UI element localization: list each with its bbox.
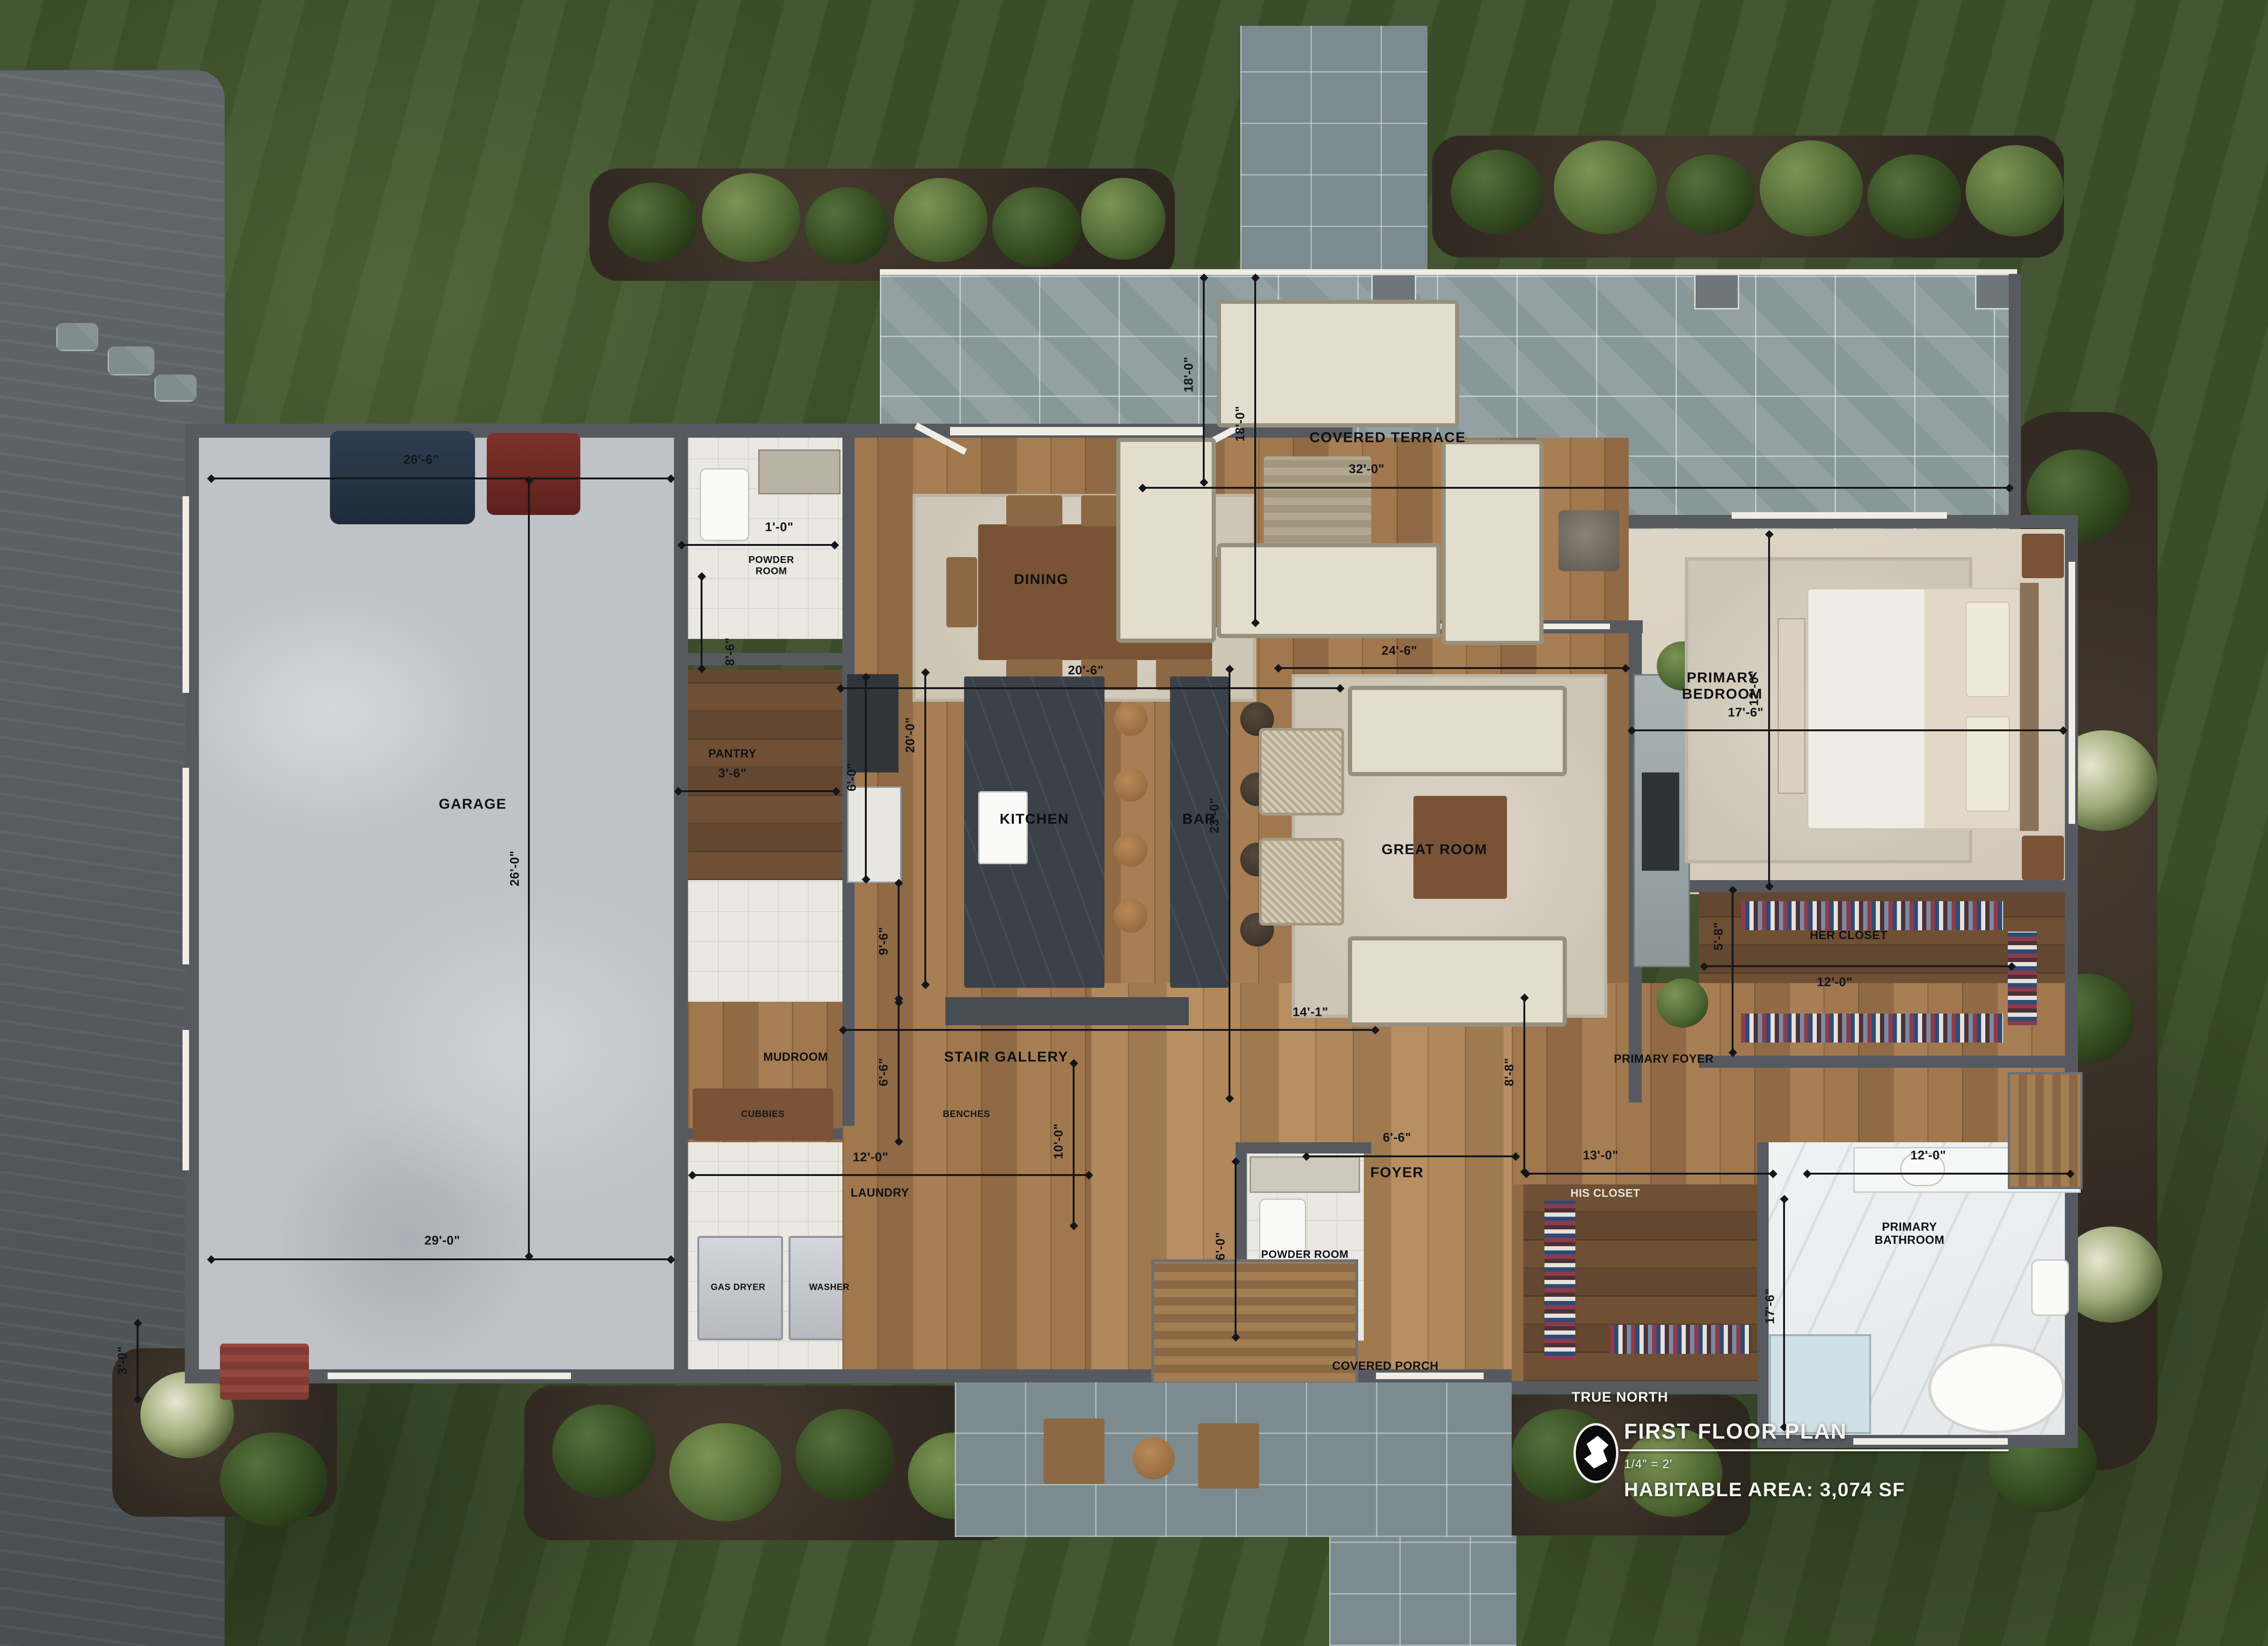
bush — [608, 183, 697, 262]
dim-garage-depth: 26'-0" — [508, 851, 522, 886]
powder-lower-top-wall — [1236, 1142, 1371, 1154]
dim-kitchen: 20'-0" — [903, 717, 918, 753]
garage-window — [183, 768, 189, 964]
headboard — [2020, 583, 2039, 831]
bush — [1081, 178, 1165, 260]
dim-line-kitchen — [924, 672, 926, 985]
dim-line-bedroom-d — [1768, 534, 1770, 887]
dim-line-side-hall — [898, 882, 900, 999]
dim-line-terrace-w — [1142, 487, 2010, 489]
label-mudroom: MUDROOM — [763, 1051, 828, 1064]
vehicle-car — [487, 433, 580, 515]
label-powder-lower: POWDER ROOM — [1261, 1249, 1349, 1261]
label-cubbies: CUBBIES — [741, 1109, 785, 1119]
title-underline — [1620, 1449, 2009, 1451]
dim-line-gallery-w — [842, 1029, 1376, 1031]
dim-line-pantry-d — [865, 676, 867, 880]
dim-entry-hall: 8'-6" — [723, 638, 738, 666]
label-covered-terrace: COVERED TERRACE — [1310, 430, 1466, 446]
firebox — [1642, 772, 1679, 871]
dim-gallery-d: 10'-0" — [1052, 1124, 1066, 1159]
true-north-text: TRUE NORTH — [1572, 1389, 1668, 1405]
closet-rack — [1610, 1325, 1750, 1354]
stepping-stone — [108, 346, 154, 375]
dim-line-garage-bottom — [211, 1258, 672, 1260]
dim-line-bath-w — [1807, 1173, 2071, 1175]
front-stairs — [1151, 1259, 1358, 1384]
dim-line-foyer — [1306, 1155, 1516, 1157]
bush — [669, 1423, 782, 1521]
label-kitchen: KITCHEN — [1000, 811, 1069, 828]
dim-hercloset-d: 5'-8" — [1712, 922, 1726, 951]
dim-powder-top: 1'-0" — [765, 520, 794, 535]
dim-line-powder-lower — [1235, 1161, 1236, 1338]
dim-line-mudroom — [898, 1002, 900, 1142]
north-arrow-glyph — [1584, 1436, 1609, 1469]
dim-great-w: 24'-6" — [1382, 644, 1417, 658]
porch-chair — [1044, 1418, 1105, 1484]
powder-vanity — [758, 449, 841, 494]
floor-plan-render: 26'-6" 29'-0" 26'-0" 3'-0" 1'-0" 8'-6" 3… — [0, 0, 2268, 1646]
true-north-label: TRUE NORTH — [1572, 1389, 1668, 1405]
dim-line-garage-top — [211, 478, 672, 479]
closet-rack — [1741, 901, 2003, 930]
garage-window — [183, 496, 189, 693]
bush — [805, 187, 889, 265]
island-stool — [1114, 833, 1148, 867]
island-sink — [978, 791, 1028, 864]
dim-line-hercloset-w — [1704, 965, 2012, 967]
bush — [1554, 140, 1657, 234]
indoor-plant — [1657, 978, 1708, 1028]
porch-side-table — [1133, 1437, 1175, 1479]
dim-side-hall: 9'-6" — [877, 927, 891, 955]
dim-line-great-d — [1229, 669, 1230, 1099]
label-gas-dryer: GAS DRYER — [703, 1282, 773, 1292]
closet-rack — [2008, 932, 2037, 1025]
dim-bath-w: 12'-0" — [1910, 1148, 1946, 1163]
outdoor-sofa — [1441, 440, 1544, 645]
porch-chair — [1198, 1423, 1259, 1489]
label-garage: GARAGE — [439, 796, 506, 813]
dim-line-pantry-w — [678, 790, 837, 792]
dim-hercloset-w: 12'-0" — [1817, 975, 1852, 990]
dim-line-terrace-a — [1203, 277, 1205, 483]
label-his-closet: HIS CLOSET — [1570, 1188, 1640, 1200]
dim-bath-d: 17'-6" — [1763, 1288, 1778, 1324]
powder-lower-vanity — [1250, 1156, 1360, 1193]
dim-gallery-w: 14'-1" — [1293, 1005, 1328, 1020]
dim-bedroom-w: 17'-6" — [1728, 705, 1763, 720]
dim-line-great-w — [1278, 667, 1626, 669]
closet-rack — [1741, 1014, 2003, 1043]
dining-bay-window — [950, 427, 1203, 435]
front-door — [1376, 1373, 1484, 1379]
dim-line-garage-bay — [137, 1323, 139, 1400]
nightstand — [2022, 836, 2064, 880]
pantry-floor — [688, 669, 842, 880]
dim-pantry-d: 6'-0" — [845, 763, 859, 792]
dim-line-primary-foyer — [1523, 997, 1525, 1173]
dim-dining: 20'-6" — [1068, 663, 1104, 678]
bedroom-closet-wall — [1629, 880, 2078, 892]
terrace-column — [1694, 274, 1739, 309]
garage-window — [183, 1030, 189, 1170]
label-primary-foyer: PRIMARY FOYER — [1614, 1052, 1713, 1065]
terrace-edge-trim — [880, 269, 2017, 275]
bush — [1760, 140, 1863, 236]
dim-terrace-b: 18'-0" — [1233, 406, 1248, 441]
garden-bench — [220, 1344, 309, 1400]
label-laundry: LAUNDRY — [851, 1186, 909, 1199]
dim-line-hercloset-d — [1732, 889, 1734, 1053]
dim-line-entry-hall — [701, 576, 702, 669]
dim-foyer: 6'-6" — [1383, 1131, 1412, 1145]
bush — [220, 1433, 328, 1526]
fire-pit — [1558, 510, 1619, 571]
dim-garage-top: 26'-6" — [403, 453, 439, 467]
freestanding-tub — [1928, 1344, 2065, 1433]
her-closet-bottom-wall — [1699, 1056, 2078, 1068]
sofa — [1348, 686, 1567, 776]
armchair — [1259, 838, 1344, 926]
dim-terrace-a: 18'-0" — [1182, 357, 1196, 392]
dim-garage-bottom: 29'-0" — [424, 1234, 460, 1248]
stepping-stone — [154, 375, 197, 402]
dim-garage-bay: 3'-0" — [116, 1346, 130, 1375]
dim-mudroom: 6'-6" — [877, 1058, 891, 1087]
island-stool — [1114, 702, 1148, 736]
dim-pantry-w: 3'-6" — [718, 766, 747, 781]
label-benches: BENCHES — [943, 1109, 990, 1119]
dining-chair-end — [946, 557, 977, 627]
nightstand — [2022, 534, 2064, 578]
bush — [1451, 150, 1544, 234]
pillow — [1966, 602, 2010, 697]
label-primary-bedroom: PRIMARY BEDROOM — [1671, 669, 1774, 702]
armchair — [1259, 728, 1344, 816]
bush — [992, 187, 1081, 267]
bush — [894, 178, 988, 262]
habitable-area: HABITABLE AREA: 3,074 SF — [1624, 1478, 1905, 1501]
island-stool — [1114, 899, 1148, 933]
plan-scale: 1/4" = 2' — [1624, 1457, 1672, 1471]
outdoor-sofa — [1217, 300, 1459, 427]
outdoor-sofa — [1217, 543, 1441, 638]
dim-line-dining — [840, 687, 1341, 689]
closet-rack — [1544, 1201, 1575, 1360]
bush — [796, 1409, 894, 1500]
label-pantry: PANTRY — [709, 747, 757, 760]
plan-title: FIRST FLOOR PLAN — [1624, 1418, 1847, 1444]
dim-laundry: 12'-0" — [853, 1150, 888, 1165]
dim-line-laundry — [692, 1174, 1090, 1176]
bush — [552, 1404, 655, 1498]
label-primary-bathroom: PRIMARY BATHROOM — [1863, 1220, 1956, 1247]
dim-line-bedroom-w — [1631, 729, 2064, 731]
dim-line-bath-d — [1783, 1198, 1785, 1428]
dim-primary-foyer: 8'-8" — [1502, 1058, 1517, 1087]
gallery-console — [945, 997, 1189, 1025]
label-dining: DINING — [1014, 572, 1069, 588]
garage-right-wall — [674, 424, 688, 1383]
bush — [702, 173, 800, 262]
toilet — [2031, 1259, 2069, 1316]
stepping-stone — [56, 323, 98, 351]
dim-terrace-w: 32'-0" — [1349, 462, 1384, 477]
dim-line-gallery-d — [1073, 1063, 1075, 1227]
toilet — [700, 468, 749, 541]
label-bar: BAR — [1182, 811, 1216, 828]
bush — [1966, 145, 2064, 236]
label-stair-gallery: STAIR GALLERY — [944, 1049, 1068, 1065]
north-arrow-icon — [1573, 1423, 1618, 1483]
label-foyer: FOYER — [1370, 1165, 1424, 1181]
dim-powder-lower: 6'-0" — [1214, 1232, 1228, 1261]
label-powder-top: POWDER ROOM — [734, 554, 809, 576]
bed-bench — [1778, 618, 1806, 794]
dim-line-garage-depth — [528, 480, 530, 1257]
dim-line-terrace-b — [1254, 277, 1256, 624]
dining-chair — [1006, 495, 1062, 526]
label-washer: WASHER — [809, 1282, 849, 1292]
range-cooktop — [847, 786, 901, 883]
bush — [1867, 154, 1961, 239]
outdoor-sofa — [1116, 438, 1216, 643]
label-her-closet: HER CLOSET — [1810, 929, 1888, 942]
dim-hiscloset: 13'-0" — [1583, 1148, 1618, 1163]
label-great-room: GREAT ROOM — [1382, 842, 1487, 858]
bush — [1666, 154, 1755, 234]
dim-line-powder-top — [681, 544, 835, 546]
front-walkway-top — [1240, 26, 1427, 279]
bathroom-bay-window — [1853, 1438, 2008, 1445]
side-entry-hall-floor — [688, 880, 842, 1002]
island-stool — [1114, 768, 1148, 801]
sofa — [1348, 936, 1567, 1027]
bedroom-side-window — [2069, 562, 2075, 824]
label-covered-porch: COVERED PORCH — [1332, 1359, 1438, 1373]
pantry-top-wall — [688, 653, 842, 665]
garage-bay-window — [328, 1373, 571, 1379]
bedroom-window — [1732, 512, 1947, 519]
dim-line-hiscloset — [1526, 1173, 1774, 1175]
